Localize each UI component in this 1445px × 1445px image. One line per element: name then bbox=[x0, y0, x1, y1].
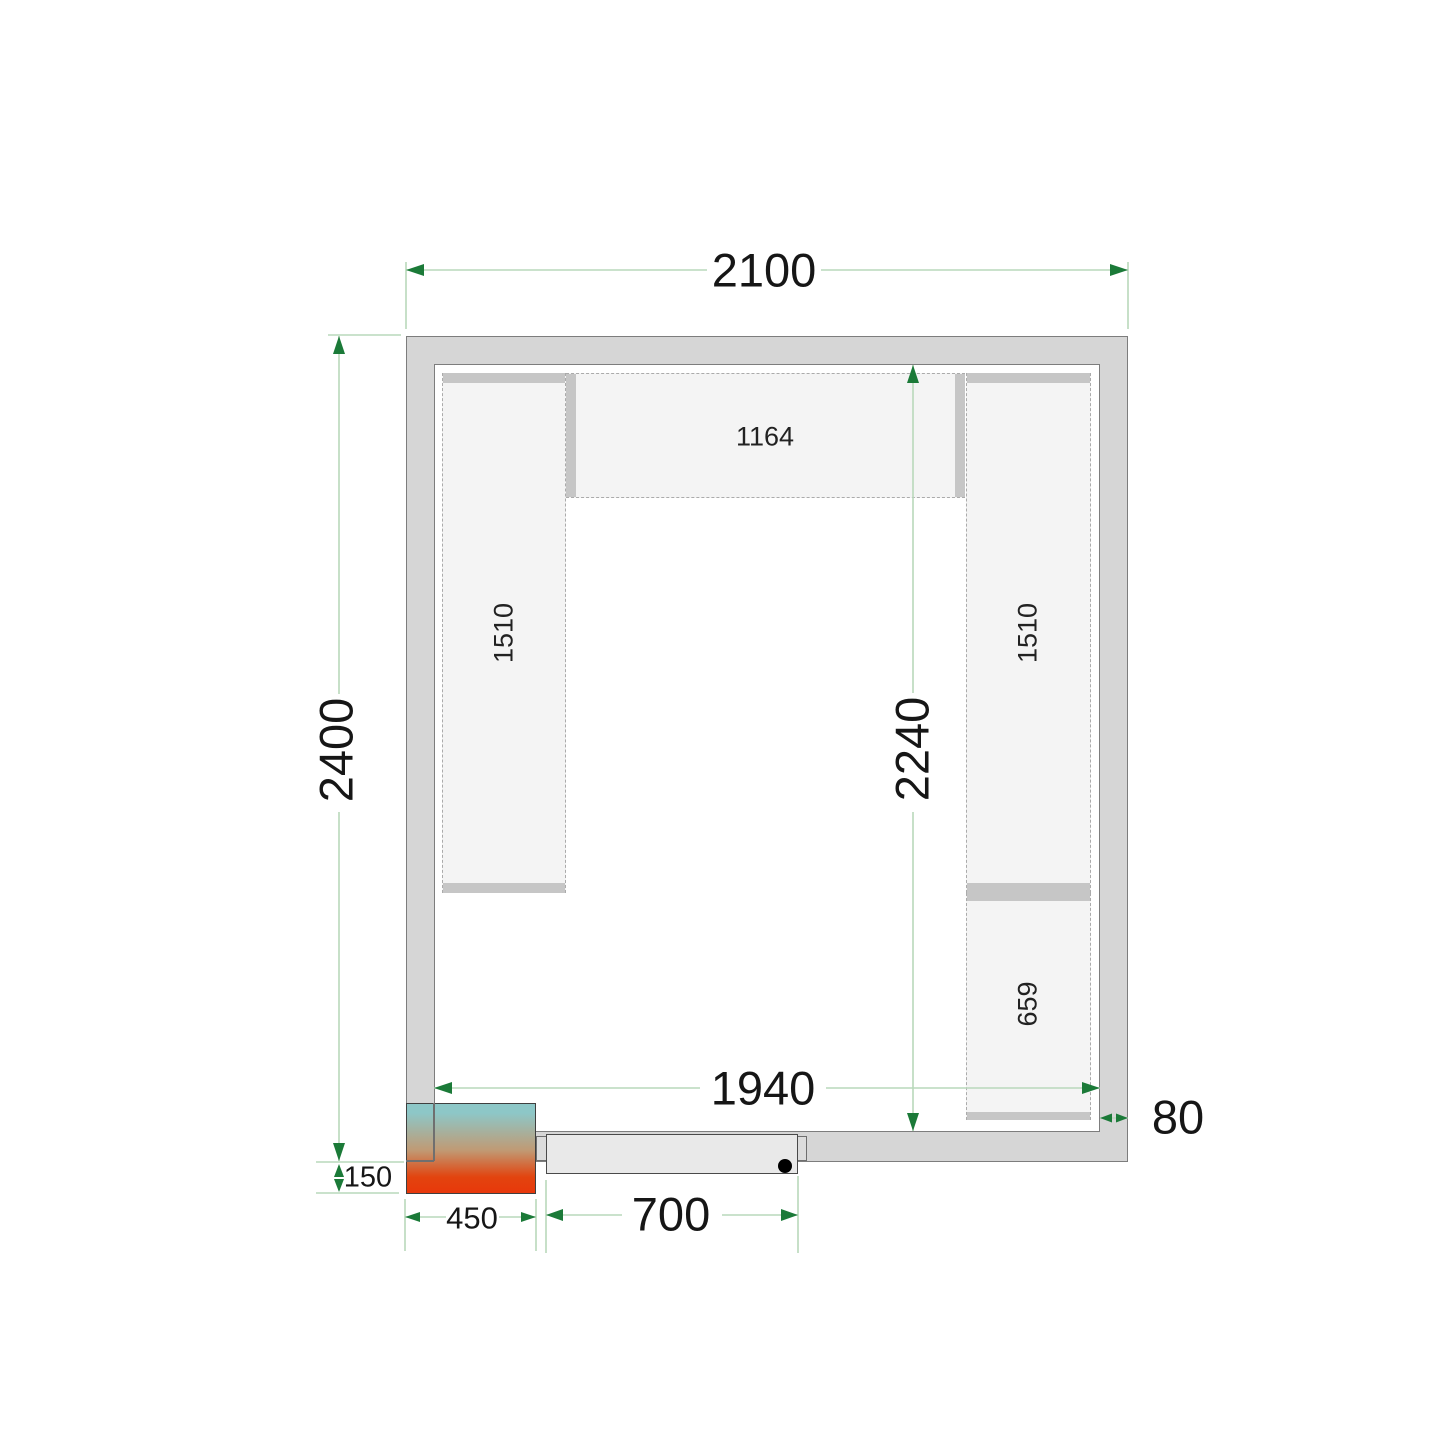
dim-door-width: 700 bbox=[632, 1191, 710, 1238]
dim-unit-protrusion: 150 bbox=[344, 1164, 392, 1193]
dim-outer-depth: 2400 bbox=[313, 698, 360, 803]
shelf-top-label: 1164 bbox=[736, 424, 794, 451]
cooling-unit bbox=[406, 1103, 536, 1194]
floor-plan-canvas: 2100 2400 2240 1940 80 700 450 150 1164 … bbox=[0, 0, 1445, 1445]
dim-inner-depth: 2240 bbox=[889, 697, 936, 802]
shelf-right-label: 1510 bbox=[1015, 603, 1042, 663]
shelf-end-bar bbox=[967, 1112, 1090, 1120]
wall-edge-overlay bbox=[433, 1103, 435, 1161]
shelf-end-bar bbox=[443, 373, 565, 383]
shelf-end-bar bbox=[566, 374, 576, 497]
shelf-end-bar bbox=[967, 893, 1090, 901]
dim-wall-thickness: 80 bbox=[1152, 1094, 1204, 1141]
wall-edge-overlay bbox=[406, 1160, 434, 1162]
shelf-end-bar bbox=[967, 883, 1090, 893]
shelf-end-bar bbox=[955, 374, 965, 497]
dim-outer-width: 2100 bbox=[712, 247, 817, 294]
shelf-end-bar bbox=[967, 373, 1090, 383]
door-leaf bbox=[546, 1134, 798, 1174]
door-handle-icon bbox=[778, 1159, 792, 1173]
shelf-right-bottom-label: 659 bbox=[1015, 981, 1042, 1026]
dim-inner-width: 1940 bbox=[711, 1065, 816, 1112]
shelf-end-bar bbox=[443, 883, 565, 893]
shelf-left-label: 1510 bbox=[491, 603, 518, 663]
dim-unit-width: 450 bbox=[446, 1203, 498, 1234]
